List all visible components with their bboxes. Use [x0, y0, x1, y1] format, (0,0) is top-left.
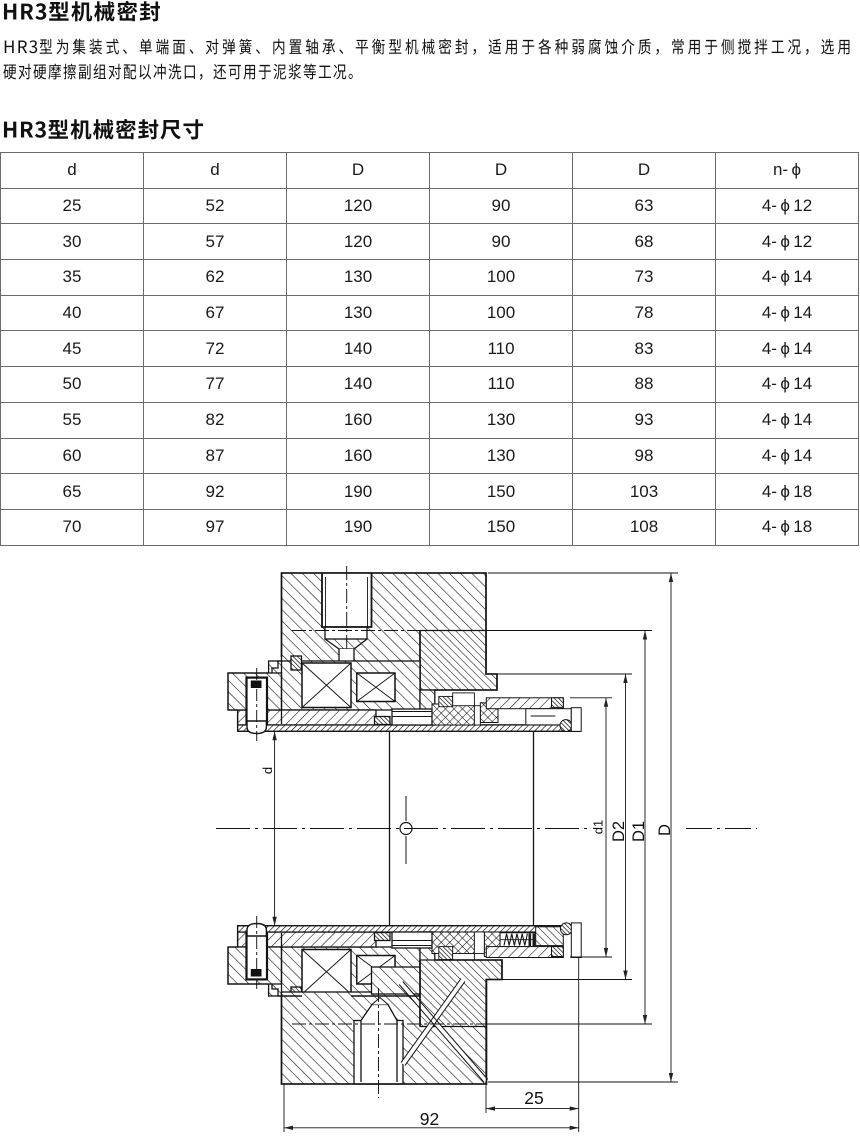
svg-text:d: d [260, 767, 275, 774]
svg-text:D1: D1 [630, 821, 648, 842]
svg-text:25: 25 [524, 1088, 543, 1108]
svg-text:d1: d1 [591, 820, 606, 834]
svg-text:D2: D2 [610, 821, 628, 842]
svg-text:92: 92 [420, 1109, 439, 1129]
svg-text:D: D [656, 824, 674, 836]
